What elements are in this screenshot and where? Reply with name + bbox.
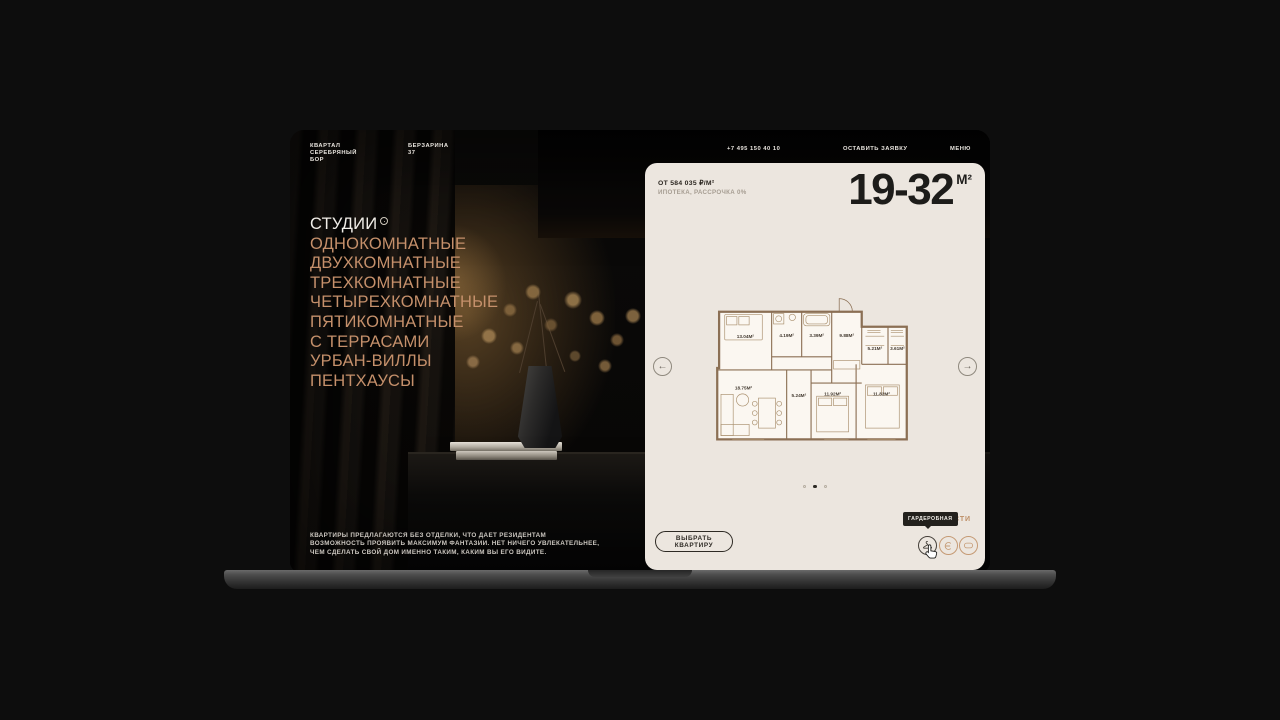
- laptop-screen: КВАРТАЛ СЕРЕБРЯНЫЙ БОР БЕРЗАРИНА 37 +7 4…: [290, 130, 990, 572]
- catalog-item[interactable]: С ТЕРРАСАМИ: [310, 333, 498, 353]
- window-icon[interactable]: [959, 536, 978, 555]
- address-line: БЕРЗАРИНА: [408, 143, 449, 150]
- hand-cursor-icon: [925, 544, 938, 559]
- laptop-base: [224, 570, 1056, 589]
- catalog-item-label: СТУДИИ: [310, 215, 377, 235]
- catalog-item[interactable]: ТРЕХКОМНАТНЫЕ: [310, 274, 498, 294]
- catalog-item-studios[interactable]: СТУДИИ: [310, 215, 498, 235]
- select-apartment-button[interactable]: ВЫБРАТЬ КВАРТИРУ: [655, 531, 733, 552]
- no-finish-description: КВАРТИРЫ ПРЕДЛАГАЮТСЯ БЕЗ ОТДЕЛКИ, ЧТО Д…: [310, 532, 600, 557]
- menu-button[interactable]: МЕНЮ: [950, 146, 971, 153]
- catalog-item[interactable]: ДВУХКОМНАТНЫЕ: [310, 254, 498, 274]
- room-area-label: 5.24М²: [792, 393, 807, 398]
- room-area-label: 3.61М²: [890, 346, 905, 351]
- apartment-detail-panel: ОТ 584 035 ₽/М² ИПОТЕКА, РАССРОЧКА 0% 19…: [645, 163, 985, 570]
- area-range-unit: М²: [956, 172, 972, 187]
- pagination-dot[interactable]: [824, 485, 827, 488]
- room-area-label: 5.21М²: [868, 346, 883, 351]
- room-area-label: 4.19М²: [779, 333, 794, 338]
- room-area-label: 18.75М²: [735, 386, 753, 391]
- brand-line: СЕРЕБРЯНЫЙ: [310, 150, 357, 157]
- apartment-type-list: СТУДИИ ОДНОКОМНАТНЫЕ ДВУХКОМНАТНЫЕ ТРЕХК…: [310, 215, 498, 391]
- room-area-label: 11.82М²: [873, 391, 890, 396]
- area-range: 19-32 М²: [848, 169, 972, 211]
- catalog-item[interactable]: ПЯТИКОМНАТНЫЕ: [310, 313, 498, 333]
- address-line: 37: [408, 150, 449, 157]
- next-plan-button[interactable]: →: [958, 357, 977, 376]
- catalog-item[interactable]: ПЕНТХАУСЫ: [310, 372, 498, 392]
- floor-plan: 13.04М² 4.19М² 3.39М² 9.88М² 5.21М² 3.61…: [707, 293, 917, 445]
- price-per-sqm: ОТ 584 035 ₽/М²: [658, 179, 714, 187]
- phone-link[interactable]: +7 495 150 40 10: [727, 146, 780, 153]
- brand-line: БОР: [310, 157, 357, 164]
- pagination-dot[interactable]: [803, 485, 806, 488]
- wardrobe-tooltip: ГАРДЕРОБНАЯ: [903, 512, 958, 526]
- request-button[interactable]: ОСТАВИТЬ ЗАЯВКУ: [843, 146, 908, 153]
- laptop-trackpad-notch: [588, 570, 692, 577]
- plan-pagination: [645, 485, 985, 488]
- room-area-label: 11.92М²: [824, 391, 841, 396]
- page-background: КВАРТАЛ СЕРЕБРЯНЫЙ БОР БЕРЗАРИНА 37 +7 4…: [0, 0, 1280, 720]
- prev-plan-button[interactable]: ←: [653, 357, 672, 376]
- room-area-label: 9.88М²: [839, 333, 854, 338]
- room-area-label: 13.04М²: [737, 334, 755, 339]
- pagination-dot-active[interactable]: [813, 485, 816, 488]
- catalog-item[interactable]: УРБАН-ВИЛЛЫ: [310, 352, 498, 372]
- catalog-item[interactable]: ОДНОКОМНАТНЫЕ: [310, 235, 498, 255]
- loggia-icon[interactable]: [939, 536, 958, 555]
- brand-logo[interactable]: КВАРТАЛ СЕРЕБРЯНЫЙ БОР: [310, 143, 357, 164]
- address: БЕРЗАРИНА 37: [408, 143, 449, 157]
- circle-badge-icon: [380, 217, 388, 225]
- mortgage-terms: ИПОТЕКА, РАССРОЧКА 0%: [658, 189, 747, 196]
- catalog-item[interactable]: ЧЕТЫРЕХКОМНАТНЫЕ: [310, 293, 498, 313]
- floor-plan-drawing: 13.04М² 4.19М² 3.39М² 9.88М² 5.21М² 3.61…: [707, 293, 917, 445]
- area-range-value: 19-32: [848, 169, 953, 211]
- room-area-label: 3.39М²: [809, 333, 824, 338]
- brand-line: КВАРТАЛ: [310, 143, 357, 150]
